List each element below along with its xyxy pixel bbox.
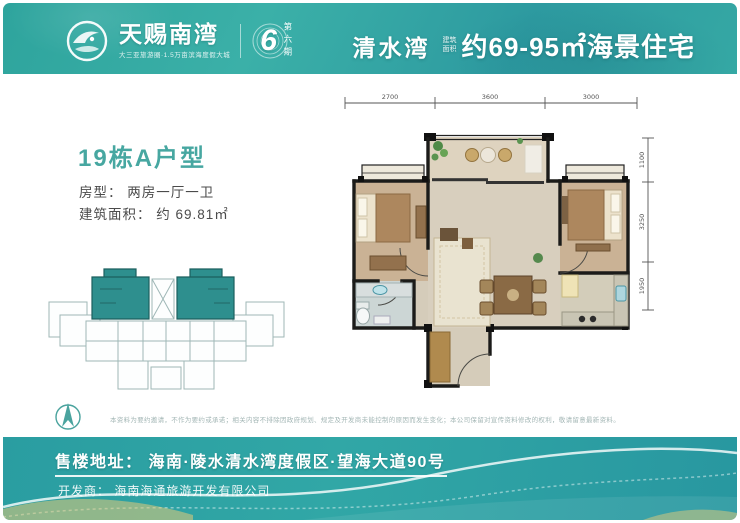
poster-canvas: 天赐南湾 大三亚旅游圈·1.5万亩滨海度假大城 6 第六期 清水湾 建筑 面积 …	[0, 0, 740, 523]
dim-right-3: 1950	[638, 278, 646, 295]
brand-logo-group: 天赐南湾 大三亚旅游圈·1.5万亩滨海度假大城 6 第六期	[65, 17, 294, 65]
unit-type-label: 房型：	[79, 185, 123, 200]
unit-type-value: 两房一厅一卫	[127, 185, 214, 200]
dim-top-1: 2700	[382, 93, 399, 101]
area-tag-line1: 建筑	[443, 37, 457, 44]
dim-top-2: 3600	[482, 93, 499, 101]
headline-text: 约69-95㎡海景住宅	[462, 27, 696, 64]
area-tag-line2: 面积	[443, 46, 457, 53]
project-name: 清水湾	[353, 29, 431, 63]
logo-divider	[240, 24, 241, 58]
header-headline-group: 清水湾 建筑 面积 约69-95㎡海景住宅	[353, 27, 696, 64]
unit-type-line: 房型： 两房一厅一卫	[79, 181, 214, 201]
unit-title: 19栋A户型	[78, 138, 206, 173]
address-value: 海南·陵水清水湾度假区·望海大道90号	[148, 454, 445, 471]
unit-location-keyplan	[48, 247, 285, 397]
address-label: 售楼地址：	[55, 454, 143, 471]
area-tag: 建筑 面积	[443, 37, 457, 55]
developer-line: 开发商： 海南海通旅游开发有限公司	[58, 482, 270, 499]
floorplan-drawing: 2700 3600 3000 1100 3250 1950	[330, 88, 675, 410]
phase-label: 第六期	[282, 22, 294, 60]
header-band: 天赐南湾 大三亚旅游圈·1.5万亩滨海度假大城 6 第六期 清水湾 建筑 面积 …	[3, 3, 737, 74]
compass-north-icon	[52, 399, 84, 433]
dim-top-3: 3000	[583, 93, 600, 101]
address-underline	[55, 475, 447, 477]
footer-band: 售楼地址： 海南·陵水清水湾度假区·望海大道90号 开发商： 海南海通旅游开发有…	[3, 437, 737, 520]
brand-logo-icon	[65, 19, 109, 63]
brand-tagline: 大三亚旅游圈·1.5万亩滨海度假大城	[119, 49, 230, 59]
brand-name: 天赐南湾	[119, 23, 230, 46]
developer-value: 海南海通旅游开发有限公司	[114, 484, 270, 498]
unit-area-line: 建筑面积： 约 69.81㎡	[79, 203, 229, 223]
disclaimer-text: 本资料为要约邀请，不作为要约或承诺；相关内容不排除因政府规划、规定及开发商未能控…	[110, 414, 655, 424]
unit-area-value: 约 69.81㎡	[156, 207, 229, 222]
phase-number: 6	[260, 26, 277, 56]
unit-area-label: 建筑面积：	[79, 207, 152, 222]
sales-address-line: 售楼地址： 海南·陵水清水湾度假区·望海大道90号	[55, 448, 445, 472]
dim-right-1: 1100	[638, 152, 646, 169]
dim-right-2: 3250	[638, 214, 646, 231]
developer-label: 开发商：	[58, 484, 110, 498]
